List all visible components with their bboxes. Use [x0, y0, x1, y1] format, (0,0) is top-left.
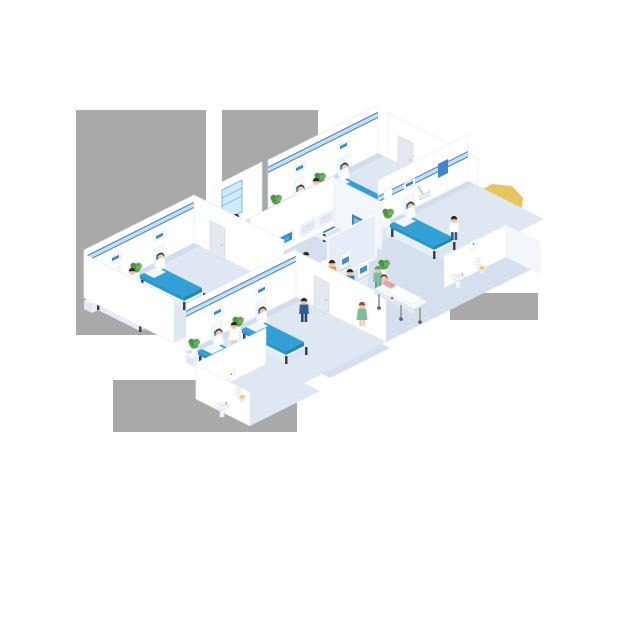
hospital-illustration: P+SM — [0, 0, 640, 640]
